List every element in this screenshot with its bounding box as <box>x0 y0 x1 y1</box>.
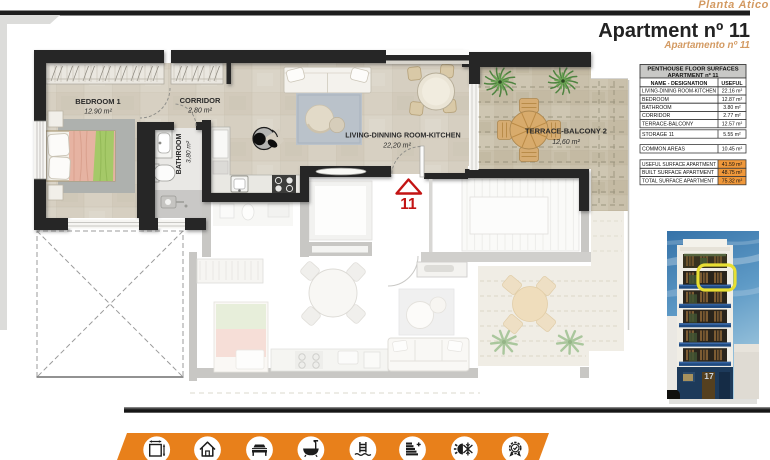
svg-text:17: 17 <box>704 371 714 381</box>
svg-text:CORRIDOR: CORRIDOR <box>642 113 670 119</box>
svg-text:Apartment nº 11: Apartment nº 11 <box>598 20 750 42</box>
svg-text:BATHROOM: BATHROOM <box>642 105 672 111</box>
svg-text:TOTAL SURFACE APARTMENT: TOTAL SURFACE APARTMENT <box>642 178 715 184</box>
svg-text:22.16 m²: 22.16 m² <box>722 89 743 95</box>
svg-text:PENTHOUSE FLOOR SURFACES: PENTHOUSE FLOOR SURFACES <box>647 67 738 73</box>
svg-text:USEFUL: USEFUL <box>721 81 743 87</box>
svg-text:3,80 m²: 3,80 m² <box>186 140 193 163</box>
svg-text:10.45 m²: 10.45 m² <box>722 147 743 153</box>
svg-text:BEDROOM: BEDROOM <box>642 97 669 103</box>
svg-text:11: 11 <box>400 196 417 213</box>
svg-text:STORAGE 11: STORAGE 11 <box>642 132 674 138</box>
svg-text:48.75 m²: 48.75 m² <box>722 170 743 176</box>
svg-text:Apartamento nº 11: Apartamento nº 11 <box>663 40 750 51</box>
svg-text:COMMON AREAS: COMMON AREAS <box>642 147 685 153</box>
svg-text:75.32 m²: 75.32 m² <box>722 178 743 184</box>
svg-text:USEFUL SURFACE APARTMENT: USEFUL SURFACE APARTMENT <box>642 162 717 168</box>
svg-text:2,80 m²: 2,80 m² <box>187 108 212 115</box>
svg-text:12,60 m²: 12,60 m² <box>552 139 580 146</box>
svg-text:22,20 m²: 22,20 m² <box>382 143 411 150</box>
svg-text:5.55 m²: 5.55 m² <box>723 132 741 138</box>
svg-text:NAME - DESIGNATION: NAME - DESIGNATION <box>651 81 708 87</box>
svg-text:LIVING-DINING ROOM-KITCHEN: LIVING-DINING ROOM-KITCHEN <box>642 89 716 95</box>
svg-text:CORRIDOR: CORRIDOR <box>180 96 221 105</box>
svg-text:TERRACE-BALCONY: TERRACE-BALCONY <box>642 121 694 127</box>
svg-text:12.57 m²: 12.57 m² <box>722 121 743 127</box>
svg-text:LIVING-DINNING ROOM-KITCHEN: LIVING-DINNING ROOM-KITCHEN <box>345 131 460 140</box>
svg-text:TERRACE-BALCONY 2: TERRACE-BALCONY 2 <box>525 127 607 136</box>
svg-text:BUILT SURFACE APARTMENT: BUILT SURFACE APARTMENT <box>642 170 715 176</box>
svg-text:41.59 m²: 41.59 m² <box>722 162 743 168</box>
svg-text:12.87 m²: 12.87 m² <box>722 97 743 103</box>
svg-text:12.90 m²: 12.90 m² <box>84 109 112 116</box>
svg-text:Planta Ático: Planta Ático <box>698 0 769 11</box>
svg-text:2.77 m²: 2.77 m² <box>723 113 741 119</box>
svg-text:3.80 m²: 3.80 m² <box>723 105 741 111</box>
svg-text:BATHROOM: BATHROOM <box>176 133 183 174</box>
svg-text:BEDROOM 1: BEDROOM 1 <box>75 97 120 106</box>
